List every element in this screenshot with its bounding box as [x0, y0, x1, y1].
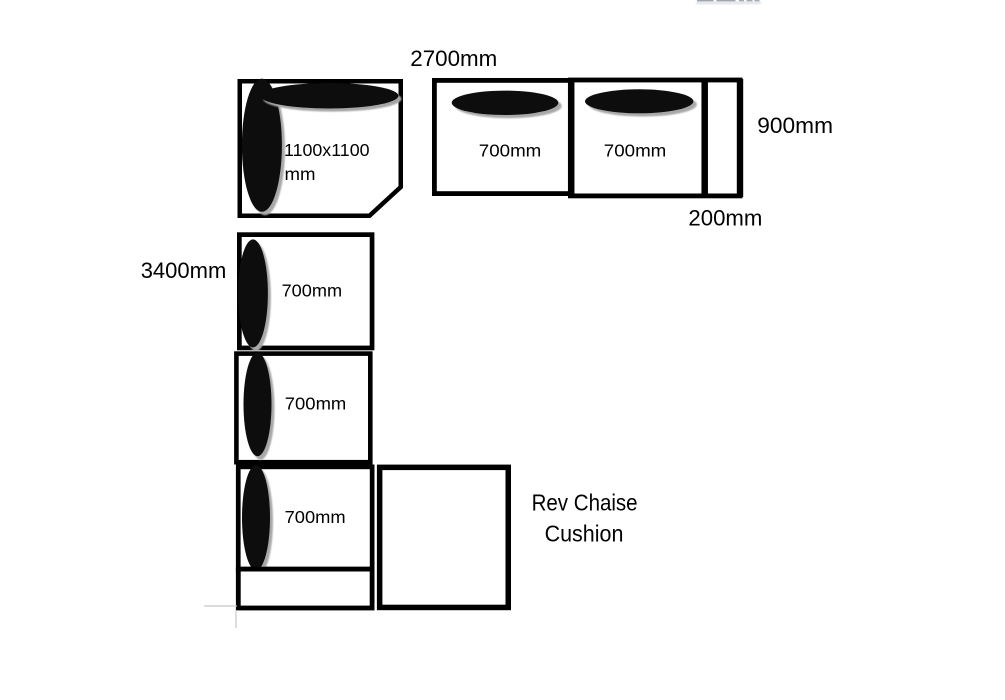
- svg-text:mm: mm: [285, 164, 316, 184]
- svg-text:1100x1100: 1100x1100: [284, 140, 370, 160]
- svg-text:2700mm: 2700mm: [410, 46, 497, 71]
- svg-text:Rev Chaise: Rev Chaise: [532, 490, 638, 516]
- svg-text:900mm: 900mm: [757, 113, 833, 138]
- svg-text:700mm: 700mm: [604, 141, 667, 161]
- svg-text:3400mm: 3400mm: [141, 258, 227, 283]
- svg-text:200mm: 200mm: [688, 205, 762, 230]
- svg-text:700mm: 700mm: [285, 507, 346, 527]
- svg-text:700mm: 700mm: [285, 394, 347, 414]
- svg-text:700mm: 700mm: [479, 141, 542, 161]
- svg-text:700mm: 700mm: [282, 280, 343, 300]
- svg-text:Cushion: Cushion: [545, 521, 624, 547]
